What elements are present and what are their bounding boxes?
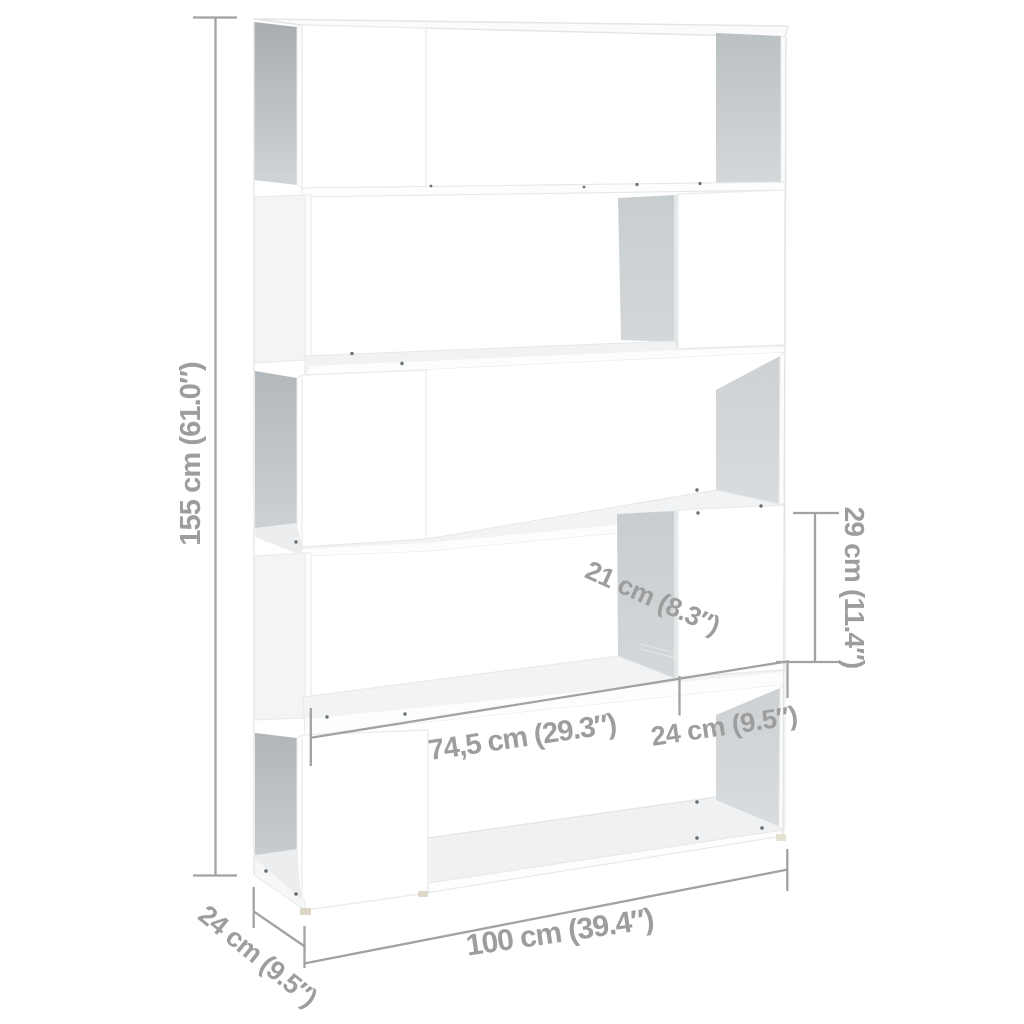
svg-text:29 cm (11.4″): 29 cm (11.4″) <box>839 507 870 669</box>
svg-text:155 cm (61.0″): 155 cm (61.0″) <box>175 362 207 546</box>
